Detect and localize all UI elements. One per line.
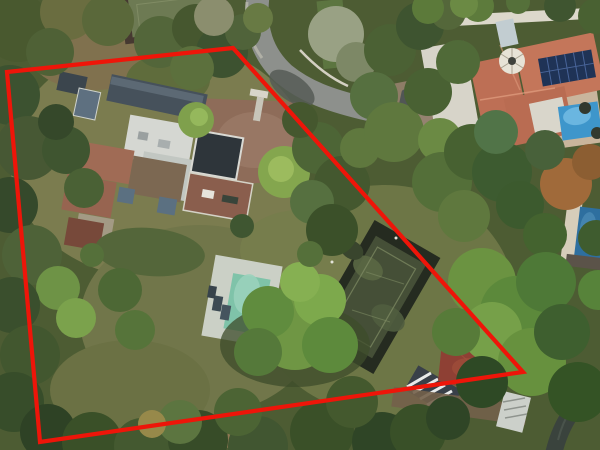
tree [534, 304, 590, 360]
tree [234, 328, 282, 376]
palm-crown [268, 156, 294, 182]
tree [326, 376, 378, 428]
tree [38, 104, 74, 140]
fence-post-1 [331, 261, 334, 264]
tree [243, 3, 273, 33]
shrub [80, 243, 104, 267]
aerial-photo-property-listing [0, 0, 600, 450]
tree [525, 130, 565, 170]
planter-1 [579, 102, 591, 114]
aerial-photo-canvas [0, 0, 600, 450]
turret-center [508, 57, 516, 65]
tree [438, 190, 490, 242]
tree [436, 40, 480, 84]
tree [302, 317, 358, 373]
shrub [230, 214, 254, 238]
shrub [297, 241, 323, 267]
tree [523, 213, 567, 257]
roof-vent-1 [137, 131, 148, 141]
tree [426, 396, 470, 440]
tree [280, 262, 320, 302]
tree [516, 252, 576, 312]
house-tower-1 [117, 187, 135, 205]
tree [474, 110, 518, 154]
tree [115, 310, 155, 350]
tree [64, 168, 104, 208]
palm-crown [190, 108, 208, 126]
tree [98, 268, 142, 312]
fence-post-4 [395, 237, 398, 240]
tree [56, 298, 96, 338]
house-tower-2 [157, 197, 178, 216]
